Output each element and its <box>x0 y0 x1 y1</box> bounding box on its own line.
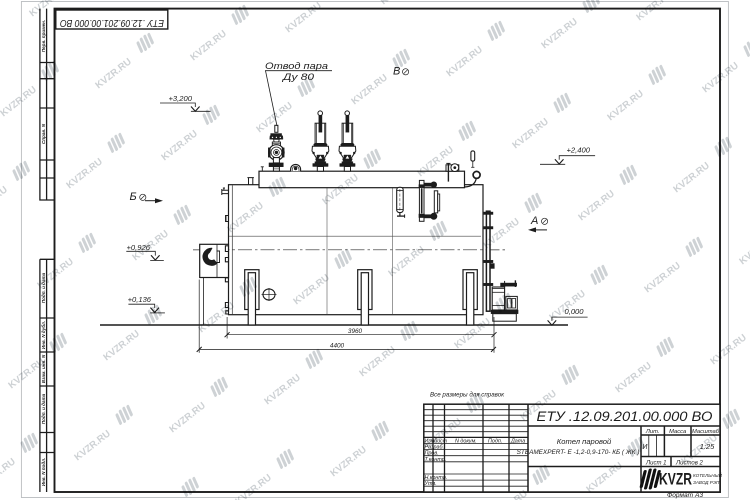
svg-text:Масса: Масса <box>669 429 687 435</box>
svg-text:Подп. и дата: Подп. и дата <box>41 393 46 424</box>
svg-text:Лист 1: Лист 1 <box>645 460 666 466</box>
svg-text:Инв. N подл.: Инв. N подл. <box>41 458 46 487</box>
svg-text:Все размеры для справок: Все размеры для справок <box>430 392 505 399</box>
svg-text:Отвод пара: Отвод пара <box>265 61 328 72</box>
svg-text:ЕТУ .12.09.201.00.000 ВО: ЕТУ .12.09.201.00.000 ВО <box>537 408 713 424</box>
svg-text:ЗАВОД РЭП: ЗАВОД РЭП <box>693 480 720 485</box>
svg-text:N докум.: N докум. <box>455 438 477 444</box>
svg-text:Лит.: Лит. <box>645 429 660 435</box>
svg-text:Формат А3: Формат А3 <box>667 492 703 499</box>
svg-text:KVZR: KVZR <box>659 470 692 489</box>
svg-text:Перв. примен.: Перв. примен. <box>41 20 46 52</box>
svg-text:+3,200: +3,200 <box>169 94 193 103</box>
svg-text:4400: 4400 <box>330 343 345 350</box>
svg-text:А: А <box>530 215 538 227</box>
svg-text:КОТЕЛЬНЫЙ: КОТЕЛЬНЫЙ <box>693 471 723 478</box>
svg-text:Утв.: Утв. <box>424 481 437 487</box>
svg-text:Масштаб: Масштаб <box>692 429 720 435</box>
svg-text:Подп.: Подп. <box>488 438 502 444</box>
svg-text:Котел паровой: Котел паровой <box>557 437 612 446</box>
svg-text:Т.контр.: Т.контр. <box>425 457 447 463</box>
svg-text:Справ. N: Справ. N <box>41 123 46 144</box>
svg-text:+2,400: +2,400 <box>567 146 591 155</box>
svg-text:ЕТУ .12.09.201.00.000 ВО: ЕТУ .12.09.201.00.000 ВО <box>60 17 164 28</box>
svg-text:Пров.: Пров. <box>425 451 439 457</box>
svg-text:+0,136: +0,136 <box>128 295 152 304</box>
svg-text:STEAMEXPERT- Е -1,2-0,9-170- К: STEAMEXPERT- Е -1,2-0,9-170- КБ ( ЖК ) <box>517 449 640 456</box>
svg-text:Б: Б <box>130 191 137 203</box>
svg-text:3960: 3960 <box>348 328 363 335</box>
svg-text:Дата: Дата <box>510 438 525 444</box>
svg-text:Н.контр.: Н.контр. <box>425 475 448 481</box>
svg-text:Инв. N дубл.: Инв. N дубл. <box>40 321 46 349</box>
